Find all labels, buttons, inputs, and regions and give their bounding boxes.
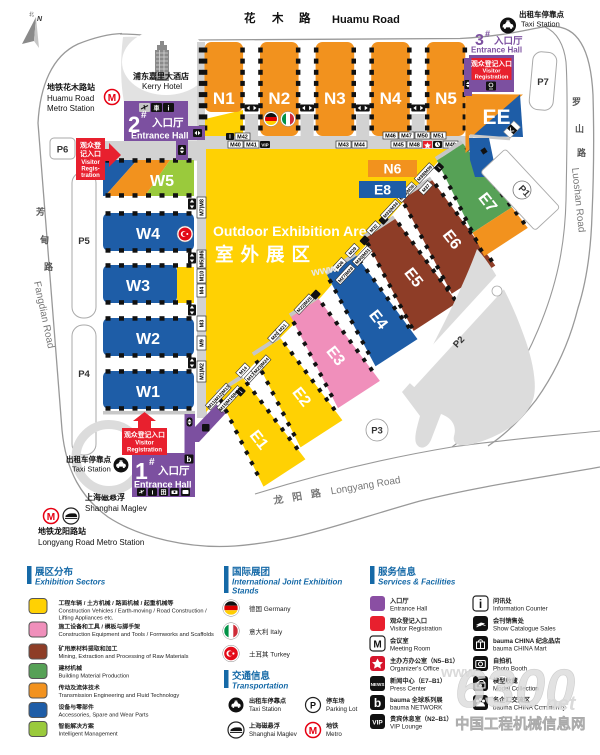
svg-text:Exhibition Sectors: Exhibition Sectors (35, 578, 106, 587)
svg-text:M: M (373, 640, 381, 651)
svg-text:N3: N3 (324, 89, 346, 108)
svg-text:Entrance Hall: Entrance Hall (131, 131, 189, 141)
svg-text:Huamu Road: Huamu Road (47, 94, 94, 103)
svg-text:EE: EE (482, 106, 510, 129)
svg-text:Lifting Appliances etc.: Lifting Appliances etc. (59, 616, 114, 622)
svg-text:观众登记入口: 观众登记入口 (471, 59, 512, 68)
svg-text:路: 路 (299, 11, 311, 25)
svg-text:停车场: 停车场 (326, 697, 345, 705)
svg-text:德国 Germany: 德国 Germany (249, 604, 291, 613)
svg-text:入口厅: 入口厅 (158, 465, 190, 477)
svg-text:国际展团: 国际展团 (232, 567, 270, 578)
svg-text:花: 花 (244, 11, 256, 25)
svg-text:Show Catalogue Sales: Show Catalogue Sales (493, 626, 556, 633)
svg-text:地铁花木路站: 地铁花木路站 (47, 82, 95, 92)
svg-text:M45: M45 (393, 142, 404, 148)
svg-text:Intelligent Management: Intelligent Management (59, 732, 119, 738)
svg-text:車: 車 (153, 105, 159, 113)
svg-text:M51: M51 (433, 133, 444, 139)
svg-text:Mining, Extraction and Process: Mining, Extraction and Processing of Raw… (59, 654, 189, 660)
svg-text:i: i (168, 106, 170, 113)
svg-text:Longyang Road Metro Station: Longyang Road Metro Station (38, 538, 144, 547)
svg-text:服务信息: 服务信息 (378, 566, 417, 578)
svg-text:b: b (187, 455, 192, 464)
svg-text:International Joint Exhibition: International Joint Exhibition (232, 578, 342, 587)
svg-text:地铁: 地铁 (326, 722, 339, 730)
svg-text:#: # (485, 29, 490, 39)
svg-text:浦东嘉里大酒店: 浦东嘉里大酒店 (133, 71, 189, 81)
svg-text:Construction Equipment and Too: Construction Equipment and Tools / Formw… (59, 632, 214, 638)
svg-text:W5: W5 (150, 173, 174, 190)
svg-text:Accessories, Spare and Wear Pa: Accessories, Spare and Wear Parts (59, 713, 149, 719)
svg-text:#: # (149, 457, 155, 468)
svg-text:Regis-: Regis- (81, 167, 99, 173)
svg-text:Parking Lot: Parking Lot (326, 706, 358, 713)
svg-text:Taxi Station: Taxi Station (72, 465, 111, 474)
svg-text:M9: M9 (200, 339, 206, 347)
svg-text:问讯处: 问讯处 (493, 597, 512, 605)
svg-text:W3: W3 (126, 278, 150, 295)
svg-text:地铁龙阳路站: 地铁龙阳路站 (38, 526, 86, 536)
svg-text:b: b (374, 696, 381, 710)
svg-text:Shanghai Maglev: Shanghai Maglev (249, 731, 298, 738)
svg-text:N6: N6 (384, 161, 402, 177)
svg-text:工程车辆 / 土方机械 / 路面机械 / 起重机械等: 工程车辆 / 土方机械 / 路面机械 / 起重机械等 (59, 599, 174, 607)
svg-text:Stands: Stands (232, 587, 259, 596)
svg-text:M: M (309, 726, 317, 737)
svg-text:bauma 全球系列展: bauma 全球系列展 (390, 696, 443, 704)
svg-text:矿用原材料提取和加工: 矿用原材料提取和加工 (59, 645, 118, 653)
svg-text:.net: .net (540, 693, 577, 715)
svg-text:M: M (108, 93, 116, 104)
svg-text:Meeting Room: Meeting Room (390, 646, 430, 653)
svg-text:Visitor Registration: Visitor Registration (390, 626, 442, 633)
svg-text:Visitor: Visitor (81, 160, 100, 166)
svg-text:W1: W1 (136, 384, 160, 401)
svg-text:Press Center: Press Center (390, 686, 426, 693)
svg-text:罗: 罗 (572, 97, 581, 107)
svg-text:W2: W2 (136, 331, 160, 348)
svg-text:P7: P7 (537, 77, 549, 88)
svg-text:Outdoor Exhibition Area: Outdoor Exhibition Area (213, 223, 374, 239)
svg-text:新闻中心（E7–B1）: 新闻中心（E7–B1） (390, 677, 446, 685)
svg-text:甸: 甸 (39, 234, 49, 245)
svg-text:P: P (310, 701, 316, 711)
svg-text:E8: E8 (374, 182, 391, 198)
svg-text:传动及流体技术: 传动及流体技术 (58, 684, 100, 692)
svg-text:北: 北 (29, 11, 34, 18)
svg-text:M4: M4 (200, 286, 206, 295)
svg-text:出租车停靠点: 出租车停靠点 (249, 697, 287, 705)
svg-text:Taxi Station: Taxi Station (521, 20, 560, 29)
svg-text:室外展区: 室外展区 (215, 244, 317, 265)
svg-text:M10: M10 (200, 271, 206, 282)
svg-text:M48: M48 (409, 142, 420, 148)
svg-text:Metro Station: Metro Station (47, 104, 95, 113)
svg-text:N5: N5 (435, 89, 457, 108)
svg-text:Entrance Hall: Entrance Hall (390, 606, 427, 613)
svg-text:M46: M46 (385, 133, 396, 139)
svg-text:Kerry Hotel: Kerry Hotel (142, 82, 182, 91)
svg-text:M44: M44 (354, 142, 366, 148)
svg-text:Registration: Registration (127, 448, 162, 454)
svg-text:Information Counter: Information Counter (493, 606, 548, 613)
svg-text:P6: P6 (57, 145, 69, 156)
svg-text:Transportation: Transportation (232, 682, 288, 691)
svg-text:bauma CHINA Mart: bauma CHINA Mart (493, 646, 547, 653)
svg-text:Taxi Station: Taxi Station (249, 706, 282, 713)
svg-text:入口厅: 入口厅 (389, 597, 409, 605)
svg-text:P4: P4 (78, 369, 90, 380)
svg-text:N4: N4 (380, 89, 402, 108)
svg-text:Registration: Registration (475, 75, 509, 81)
svg-text:山: 山 (575, 123, 584, 134)
svg-text:Metro: Metro (326, 731, 342, 738)
svg-text:田: 田 (160, 490, 166, 497)
svg-text:交通信息: 交通信息 (232, 670, 271, 682)
svg-text:M5|M6: M5|M6 (200, 251, 206, 268)
svg-text:会议室: 会议室 (390, 637, 409, 645)
svg-text:Transmission Engineering and F: Transmission Engineering and Fluid Techn… (59, 693, 180, 699)
svg-text:施工设备和工具 / 模板与脚手架: 施工设备和工具 / 模板与脚手架 (59, 623, 141, 631)
svg-text:bauma CHINA 纪念品店: bauma CHINA 纪念品店 (493, 637, 561, 645)
svg-text:设备与零部件: 设备与零部件 (59, 703, 94, 711)
svg-text:P5: P5 (78, 236, 90, 247)
svg-text:观众登记入口: 观众登记入口 (124, 430, 165, 439)
svg-text:木: 木 (271, 11, 284, 25)
svg-text:Services & Facilities: Services & Facilities (378, 578, 456, 587)
svg-text:意大利 Italy: 意大利 Italy (249, 627, 283, 636)
svg-text:W4: W4 (136, 226, 160, 243)
svg-text:M42: M42 (237, 134, 248, 140)
svg-text:Entrance Hall: Entrance Hall (471, 46, 522, 55)
svg-text:贵宾休息室（N2–B1）: 贵宾休息室（N2–B1） (390, 715, 453, 723)
svg-text:M40: M40 (230, 142, 241, 148)
svg-text:M: M (47, 512, 55, 523)
svg-text:中国工程机械信息网: 中国工程机械信息网 (455, 715, 586, 733)
svg-text:Organizer's Office: Organizer's Office (390, 666, 440, 673)
svg-text:会刊销售处: 会刊销售处 (493, 617, 525, 625)
svg-text:Visitor: Visitor (135, 441, 154, 447)
svg-text:出租车停靠点: 出租车停靠点 (66, 454, 111, 464)
svg-text:VIP Lounge: VIP Lounge (390, 724, 423, 731)
svg-text:M41: M41 (246, 142, 257, 148)
svg-text:tration: tration (81, 173, 100, 179)
svg-text:N1: N1 (213, 89, 235, 108)
svg-text:Shanghai Maglev: Shanghai Maglev (85, 504, 147, 513)
svg-text:N2: N2 (268, 89, 290, 108)
svg-text:M43: M43 (338, 142, 349, 148)
svg-text:M50: M50 (417, 133, 428, 139)
svg-text:土耳其 Turkey: 土耳其 Turkey (249, 650, 291, 659)
svg-text:bauma NETWORK: bauma NETWORK (390, 705, 443, 712)
svg-text:M47: M47 (401, 133, 412, 139)
svg-text:M3: M3 (200, 320, 206, 328)
svg-text:入口厅: 入口厅 (152, 117, 184, 129)
svg-text:P3: P3 (371, 426, 383, 437)
svg-text:Building Material Production: Building Material Production (59, 674, 130, 680)
svg-text:i: i (479, 597, 482, 611)
svg-text:建材机械: 建材机械 (58, 664, 83, 672)
svg-text:M7|M8: M7|M8 (200, 199, 206, 216)
svg-text:VIP: VIP (372, 720, 383, 727)
svg-text:NEWS: NEWS (371, 682, 385, 687)
svg-text:芳: 芳 (36, 206, 45, 217)
svg-text:Huamu Road: Huamu Road (332, 14, 400, 26)
svg-text:上海磁悬浮: 上海磁悬浮 (249, 722, 280, 730)
svg-text:路: 路 (44, 261, 54, 272)
svg-text:M1|M2: M1|M2 (200, 363, 206, 380)
svg-text:记入口: 记入口 (80, 149, 101, 158)
svg-text:VIP: VIP (261, 143, 268, 148)
svg-text:智能解决方案: 智能解决方案 (59, 722, 94, 730)
svg-text:i: i (152, 490, 154, 497)
svg-text:路: 路 (577, 147, 587, 158)
svg-text:Construction Vehicles / Earth-: Construction Vehicles / Earth-moving / R… (59, 609, 208, 615)
svg-text:观众登: 观众登 (80, 141, 102, 150)
svg-text:#: # (141, 110, 147, 121)
svg-text:观众登记入口: 观众登记入口 (389, 617, 427, 625)
svg-text:展区分布: 展区分布 (35, 566, 74, 578)
svg-text:出租车停靠点: 出租车停靠点 (519, 9, 564, 19)
